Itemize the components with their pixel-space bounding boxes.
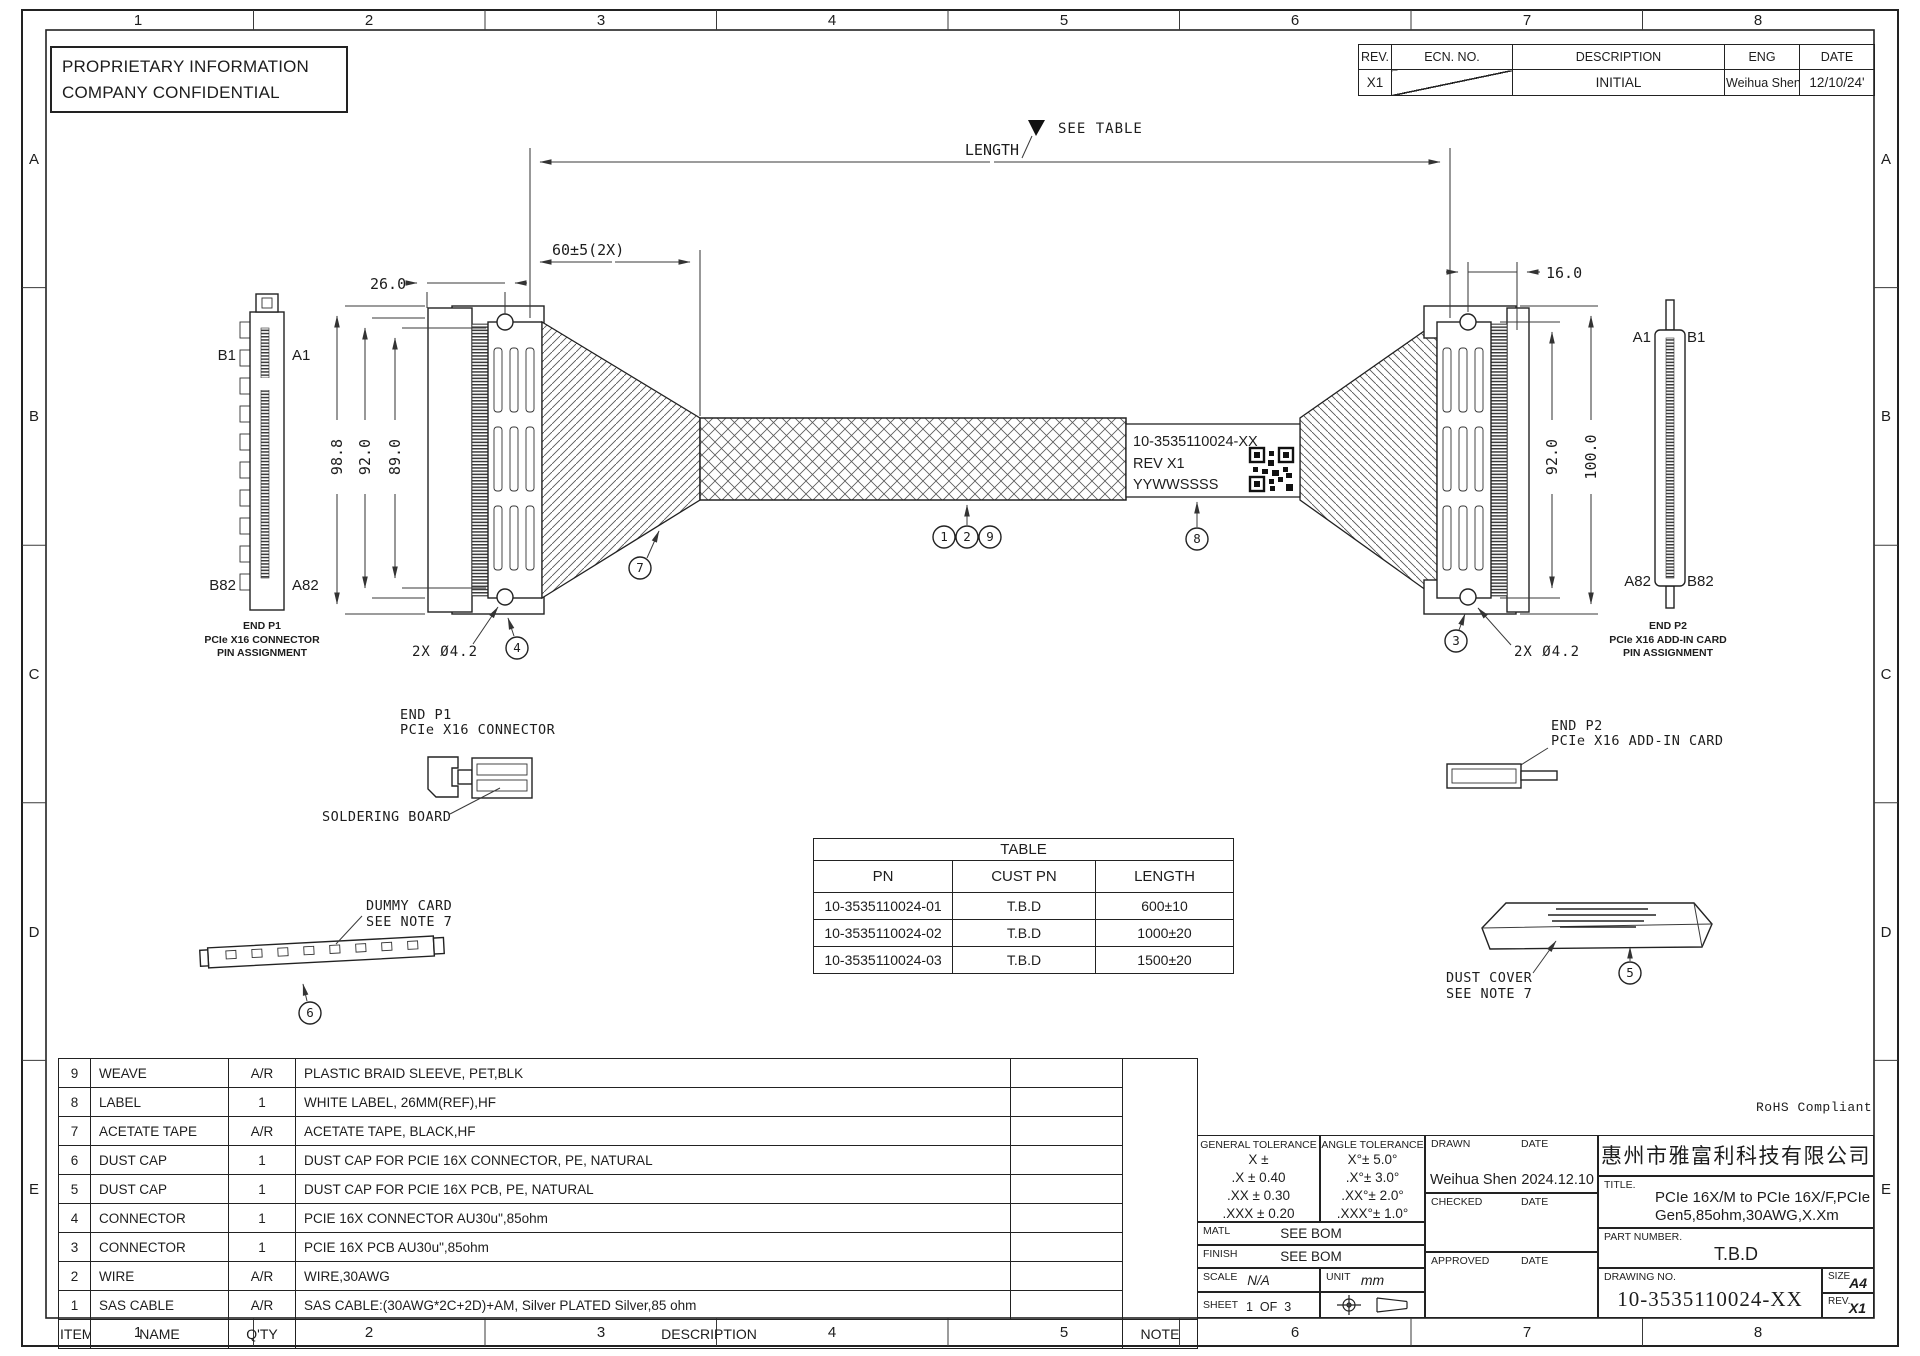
length-cell: 600±10: [1096, 893, 1234, 920]
drawing-no-cell: DRAWING NO. 10-3535110024-XX: [1598, 1268, 1822, 1318]
length-cell: 1000±20: [1096, 920, 1234, 947]
description-header: DESCRIPTION: [1513, 45, 1725, 70]
balloon-4: 4: [513, 640, 521, 655]
bom-header-name: NAME: [91, 1320, 229, 1349]
rev-value: X1: [1849, 1300, 1866, 1316]
bom-header-qty: Q'TY: [229, 1320, 296, 1349]
svg-text:PCIe X16 CONNECTOR: PCIe X16 CONNECTOR: [204, 634, 320, 646]
svg-text:DUST COVER: DUST COVER: [1446, 970, 1533, 986]
svg-text:E: E: [1881, 1181, 1891, 1198]
pin-label-a1: A1: [1633, 329, 1651, 346]
dim-60: 60±5(2X): [552, 241, 624, 259]
projection-cell: [1320, 1292, 1425, 1318]
svg-text:DUMMY CARD: DUMMY CARD: [366, 898, 452, 914]
eng-header: ENG: [1725, 45, 1800, 70]
svg-text:2: 2: [365, 12, 373, 29]
table-row: 10-3535110024-01 T.B.D 600±10: [814, 893, 1234, 920]
cust-pn-cell: T.B.D: [953, 893, 1096, 920]
svg-text:PCIe X16 ADD-IN CARD: PCIe X16 ADD-IN CARD: [1551, 733, 1724, 749]
pn-cell: 10-3535110024-02: [814, 920, 953, 947]
svg-text:C: C: [1881, 666, 1892, 683]
date-header: DATE: [1800, 45, 1875, 70]
pin-label-a1: A1: [292, 347, 310, 364]
balloon-7: 7: [636, 560, 644, 575]
balloon-5: 5: [1626, 965, 1634, 980]
bom-row: 9WEAVEA/RPLASTIC BRAID SLEEVE, PET,BLK: [59, 1059, 1198, 1088]
drawn-name: Weihua Shen: [1430, 1172, 1517, 1188]
balloon-9: 9: [986, 529, 994, 544]
pin-label-b1: B1: [1687, 329, 1705, 346]
braid-sleeve: [700, 418, 1126, 500]
description-value: INITIAL: [1513, 70, 1725, 96]
bom-row: 6DUST CAP1DUST CAP FOR PCIE 16X CONNECTO…: [59, 1146, 1198, 1175]
approved-cell: APPROVED DATE: [1425, 1252, 1598, 1318]
pin-label-a82: A82: [292, 577, 319, 594]
svg-text:B: B: [1881, 408, 1891, 425]
part-number-cell: PART NUMBER. T.B.D: [1598, 1228, 1874, 1268]
bom-header-note: NOTE: [1123, 1320, 1198, 1349]
revision-row: X1 INITIAL Weihua Shen 12/10/24': [1359, 70, 1875, 96]
dim-89: 89.0: [386, 439, 404, 475]
svg-text:PIN ASSIGNMENT: PIN ASSIGNMENT: [1623, 647, 1714, 659]
drawn-date: 2024.12.10: [1521, 1172, 1594, 1188]
balloon-8: 8: [1193, 531, 1201, 546]
svg-text:PCIe X16 ADD-IN CARD: PCIe X16 ADD-IN CARD: [1609, 634, 1727, 646]
svg-text:SEE NOTE 7: SEE NOTE 7: [1446, 986, 1532, 1002]
col-header-length: LENGTH: [1096, 861, 1234, 893]
svg-text:3: 3: [597, 12, 605, 29]
svg-text:7: 7: [1523, 1324, 1531, 1341]
mounting-hole: [1460, 589, 1476, 605]
unit-cell: UNIT mm: [1320, 1268, 1425, 1292]
svg-text:PIN ASSIGNMENT: PIN ASSIGNMENT: [217, 647, 308, 659]
mounting-hole: [497, 314, 513, 330]
svg-text:C: C: [29, 666, 40, 683]
rev-cell: REV. X1: [1822, 1293, 1874, 1318]
mounting-hole: [1460, 314, 1476, 330]
svg-text:PCIe X16 CONNECTOR: PCIe X16 CONNECTOR: [400, 722, 556, 738]
size-cell: SIZE A4: [1822, 1268, 1874, 1293]
cust-pn-cell: T.B.D: [953, 920, 1096, 947]
angle-tolerance: ANGLE TOLERANCE X°± 5.0° .X°± 3.0° .XX°±…: [1320, 1135, 1425, 1222]
svg-text:END P2: END P2: [1551, 718, 1603, 734]
col-header-cust-pn: CUST PN: [953, 861, 1096, 893]
drawing-no-value: 10-3535110024-XX: [1599, 1287, 1821, 1312]
length-table: TABLE PN CUST PN LENGTH 10-3535110024-01…: [813, 838, 1234, 974]
pin-label-a82: A82: [1624, 573, 1651, 590]
bom-row: 3CONNECTOR1PCIE 16X PCB AU30u",85ohm: [59, 1233, 1198, 1262]
balloon-6: 6: [306, 1005, 314, 1020]
svg-text:D: D: [1881, 924, 1892, 941]
svg-text:8: 8: [1754, 1324, 1762, 1341]
end-p2-pin-view: A1 B1 A82 B82 END P2 PCIe X16 ADD-IN CAR…: [1609, 300, 1727, 659]
title-block: GENERAL TOLERANCE X ± .X ± 0.40 .XX ± 0.…: [1197, 1135, 1874, 1318]
date-value: 12/10/24': [1800, 70, 1875, 96]
table-row: 10-3535110024-03 T.B.D 1500±20: [814, 947, 1234, 974]
part-number-value: T.B.D: [1599, 1244, 1873, 1265]
end-p1-pin-view: B1 A1 B82 A82 END P1 PCIe X16 CONNECTOR …: [204, 294, 320, 659]
proprietary-line2: COMPANY CONFIDENTIAL: [62, 80, 336, 106]
rev-value: X1: [1359, 70, 1392, 96]
bom-row: 2WIREA/RWIRE,30AWG: [59, 1262, 1198, 1291]
svg-text:A: A: [29, 151, 39, 168]
ecn-value: [1392, 70, 1513, 96]
sheet-cell: SHEET 1 OF 3: [1197, 1292, 1320, 1318]
checked-cell: CHECKED DATE: [1425, 1193, 1598, 1252]
svg-text:6: 6: [1291, 1324, 1299, 1341]
rev-header: REV.: [1359, 45, 1392, 70]
svg-text:6: 6: [1291, 12, 1299, 29]
pin-label-b82: B82: [1687, 573, 1714, 590]
svg-text:D: D: [29, 924, 40, 941]
end-p1-callout: END P1 PCIe X16 CONNECTOR SOLDERING BOAR…: [322, 707, 556, 825]
cust-pn-cell: T.B.D: [953, 947, 1096, 974]
finish-cell: FINISH SEE BOM: [1197, 1245, 1425, 1268]
matl-cell: MATL SEE BOM: [1197, 1222, 1425, 1245]
svg-text:E: E: [29, 1181, 39, 1198]
length-cell: 1500±20: [1096, 947, 1234, 974]
svg-text:8: 8: [1754, 12, 1762, 29]
pn-cell: 10-3535110024-01: [814, 893, 953, 920]
pin-label-b1: B1: [218, 347, 236, 364]
eng-value: Weihua Shen: [1725, 70, 1800, 96]
dim-16: 16.0: [1546, 264, 1582, 282]
svg-text:END P2: END P2: [1649, 620, 1687, 632]
balloon-1: 1: [940, 529, 948, 544]
svg-text:END P1: END P1: [243, 620, 281, 632]
soldering-board-note: SOLDERING BOARD: [322, 809, 451, 825]
dim-26: 26.0: [370, 275, 406, 293]
end-p2-caption: END P2 PCIe X16 ADD-IN CARD PIN ASSIGNME…: [1609, 620, 1727, 659]
svg-text:END P1: END P1: [400, 707, 452, 723]
col-header-pn: PN: [814, 861, 953, 893]
proprietary-line1: PROPRIETARY INFORMATION: [62, 54, 336, 80]
dim-length: LENGTH: [965, 141, 1019, 159]
bom-row: 5DUST CAP1DUST CAP FOR PCIE 16X PCB, PE,…: [59, 1175, 1198, 1204]
hole-note-right: 2X Ø4.2: [1514, 644, 1580, 660]
scale-cell: SCALE N/A: [1197, 1268, 1320, 1292]
general-tolerance: GENERAL TOLERANCE X ± .X ± 0.40 .XX ± 0.…: [1197, 1135, 1320, 1222]
svg-text:4: 4: [828, 12, 836, 29]
svg-text:5: 5: [1060, 12, 1068, 29]
title-line1: PCIe 16X/M to PCIe 16X/F,PCIe: [1655, 1189, 1873, 1207]
see-table-note: SEE TABLE: [1058, 121, 1143, 137]
p1-connector: [428, 306, 544, 614]
end-p1-caption: END P1 PCIe X16 CONNECTOR PIN ASSIGNMENT: [204, 620, 320, 659]
svg-text:B: B: [29, 408, 39, 425]
cable: 10-3535110024-XX REV X1 YYWWSSSS: [542, 322, 1437, 598]
bom-header-item: ITEM: [59, 1320, 91, 1349]
dim-92-right: 92.0: [1543, 439, 1561, 475]
proprietary-note: PROPRIETARY INFORMATION COMPANY CONFIDEN…: [50, 46, 348, 113]
bom-row: 7ACETATE TAPEA/RACETATE TAPE, BLACK,HF: [59, 1117, 1198, 1146]
svg-text:7: 7: [1523, 12, 1531, 29]
size-value: A4: [1849, 1275, 1867, 1291]
wire-fanout-right: [1300, 322, 1437, 598]
bom-row: 8LABEL1WHITE LABEL, 26MM(REF),HF: [59, 1088, 1198, 1117]
end-p2-callout: END P2 PCIe X16 ADD-IN CARD: [1447, 718, 1724, 788]
label-datecode: YYWWSSSS: [1133, 477, 1218, 493]
matl-value: SEE BOM: [1198, 1226, 1424, 1241]
drawing-sheet: 12 34 56 78 12 34 56 78 AB CD E AB CD E: [0, 0, 1920, 1356]
svg-text:1: 1: [134, 12, 142, 29]
dim-100: 100.0: [1582, 434, 1600, 479]
see-table-flag-icon: [1028, 120, 1045, 136]
bom-header-row: ITEM NAME Q'TY DESCRIPTION NOTE: [59, 1320, 1198, 1349]
table-row: 10-3535110024-02 T.B.D 1000±20: [814, 920, 1234, 947]
sheet-value: 1 OF 3: [1246, 1300, 1319, 1314]
balloon-2: 2: [963, 529, 971, 544]
svg-text:SEE NOTE 7: SEE NOTE 7: [366, 914, 452, 930]
bom-row: 4CONNECTOR1PCIE 16X CONNECTOR AU30u",85o…: [59, 1204, 1198, 1233]
company-name: 惠州市雅富利科技有限公司: [1598, 1135, 1874, 1176]
title-line2: Gen5,85ohm,30AWG,X.Xm: [1655, 1207, 1873, 1225]
pn-cell: 10-3535110024-03: [814, 947, 953, 974]
third-angle-projection-icon: [1321, 1293, 1424, 1317]
ecn-header: ECN. NO.: [1392, 45, 1513, 70]
dim-98-8: 98.8: [328, 439, 346, 475]
length-table-title: TABLE: [814, 839, 1234, 861]
bom-row: 1SAS CABLEA/RSAS CABLE:(30AWG*2C+2D)+AM,…: [59, 1291, 1198, 1320]
dim-92-left: 92.0: [356, 439, 374, 475]
hole-note-left: 2X Ø4.2: [412, 644, 478, 660]
rohs-note: RoHS Compliant: [1756, 1100, 1872, 1115]
pin-label-b82: B82: [209, 577, 236, 594]
balloon-3: 3: [1452, 633, 1460, 648]
label-rev: REV X1: [1133, 456, 1185, 472]
dummy-card: DUMMY CARD SEE NOTE 7: [200, 898, 453, 968]
drawn-cell: DRAWN DATE Weihua Shen 2024.12.10: [1425, 1135, 1598, 1193]
title-cell: TITLE. PCIe 16X/M to PCIe 16X/F,PCIe Gen…: [1598, 1176, 1874, 1228]
svg-text:A: A: [1881, 151, 1891, 168]
label-pn: 10-3535110024-XX: [1133, 434, 1258, 450]
bom-header-description: DESCRIPTION: [296, 1320, 1123, 1349]
mounting-hole: [497, 589, 513, 605]
bom-table: 9WEAVEA/RPLASTIC BRAID SLEEVE, PET,BLK 8…: [58, 1058, 1198, 1349]
dust-cover: DUST COVER SEE NOTE 7: [1446, 903, 1712, 1002]
revision-table: REV. ECN. NO. DESCRIPTION ENG DATE X1 IN…: [1358, 44, 1875, 96]
p2-connector: [1424, 306, 1529, 614]
wire-fanout-left: [542, 322, 700, 598]
